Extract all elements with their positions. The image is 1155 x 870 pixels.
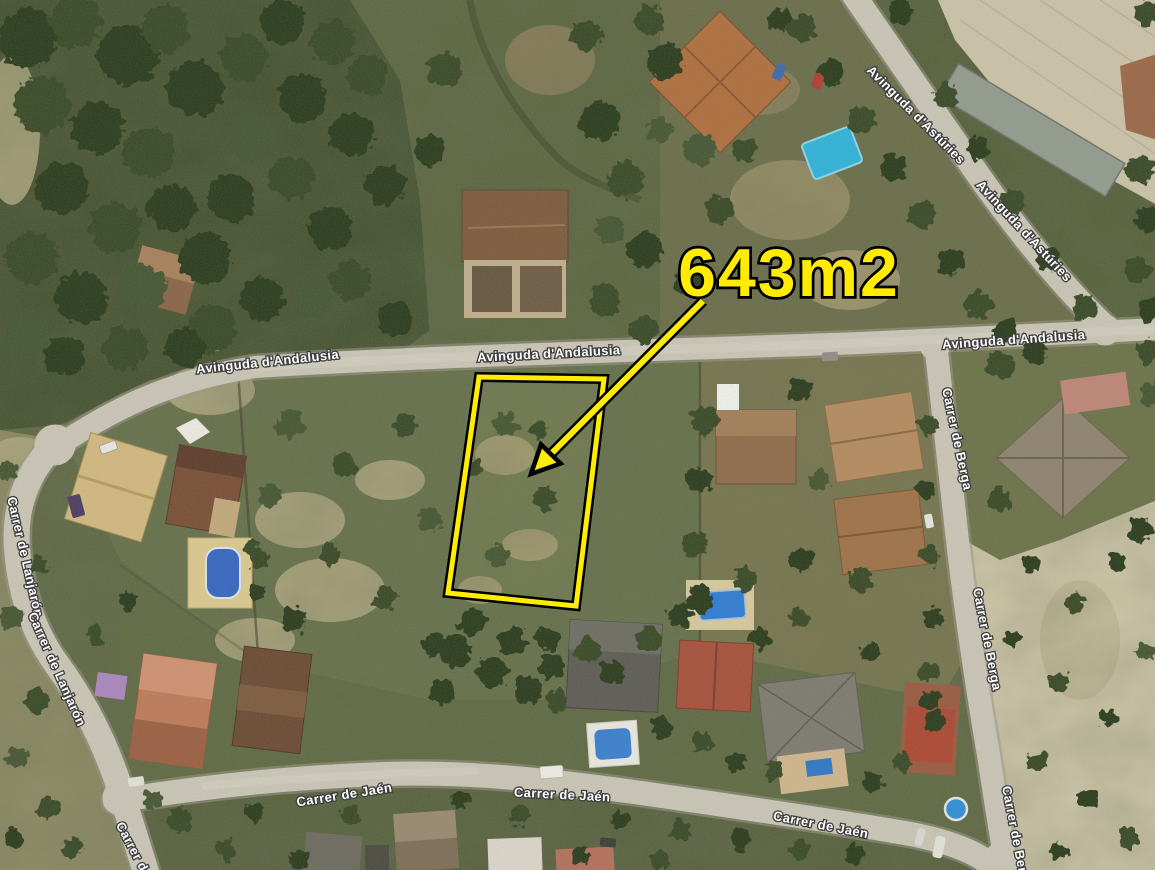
- satellite-map-screenshot: Avinguda d'Andalusia Avinguda d'Andalusi…: [0, 0, 1155, 870]
- area-label: 643m2: [678, 235, 900, 311]
- map-image: Avinguda d'Andalusia Avinguda d'Andalusi…: [0, 0, 1155, 870]
